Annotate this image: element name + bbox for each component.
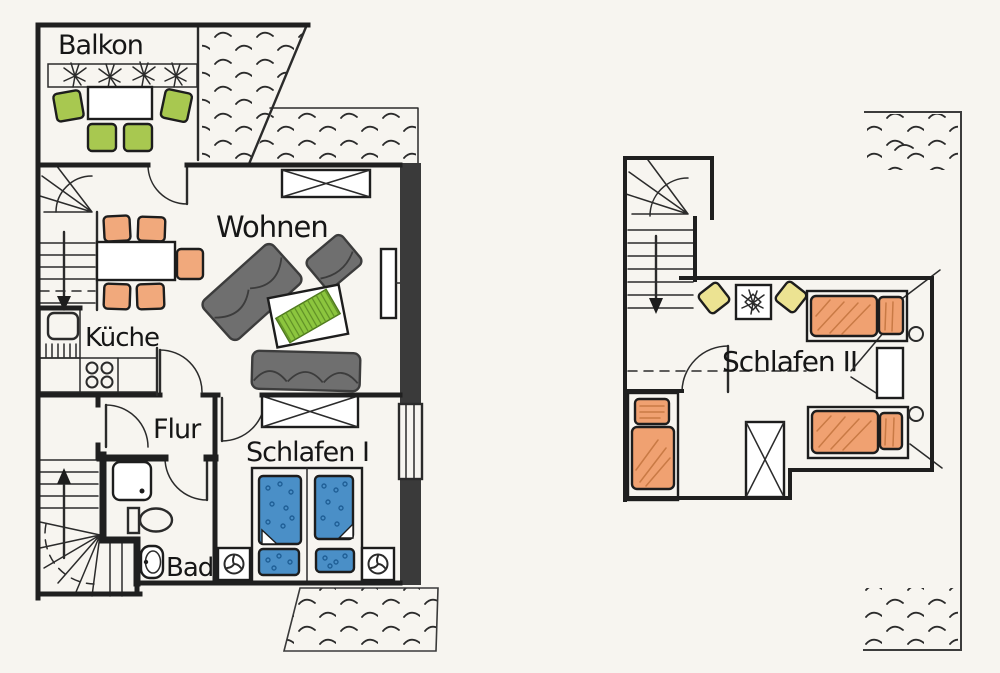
roof-tiles-right-face	[252, 110, 416, 162]
balcony: Balkon	[48, 27, 198, 160]
balcony-chair	[88, 124, 116, 151]
room-label-balkon: Balkon	[58, 30, 143, 61]
room-label-schlafen1: Schlafen I	[246, 437, 369, 468]
single-bed-alcove	[628, 393, 678, 500]
room-label-wohnen: Wohnen	[216, 210, 328, 244]
ventilation-fan-icon	[362, 548, 394, 580]
duvet-blue	[259, 476, 301, 544]
shower-drain	[140, 489, 145, 494]
duvet-blue	[315, 476, 353, 539]
bedroom-2: Schlafen II	[628, 270, 942, 500]
floor-plan-page: Balkon Küche W	[0, 0, 1000, 673]
roof-area-top	[202, 27, 418, 164]
upper-floor-plan: Schlafen II	[625, 112, 961, 650]
stairs-lower-left	[40, 460, 122, 596]
wardrobe	[282, 170, 370, 197]
bath-door-swing	[165, 458, 207, 500]
exterior-wall-right	[399, 163, 422, 585]
pillow	[880, 413, 902, 449]
stove-burner-icon	[102, 377, 113, 388]
bedroom-1: Schlafen I	[218, 396, 394, 583]
roof-area-bottom	[284, 588, 438, 651]
stove-burner-icon	[87, 377, 98, 388]
plant-icon	[64, 63, 86, 87]
balcony-door-swing	[148, 165, 187, 204]
nightstand	[877, 348, 903, 398]
stairs-arrow-up-icon	[57, 468, 71, 484]
dining-chair	[104, 284, 131, 310]
balcony-chair	[160, 89, 192, 123]
bathroom: Bad	[113, 458, 213, 583]
shower-icon	[113, 462, 151, 500]
toilet-tank	[128, 508, 139, 533]
ground-floor-plan: Balkon Küche W	[38, 25, 438, 651]
balcony-chair	[53, 90, 84, 122]
entry-door-swing	[106, 405, 148, 447]
single-bed	[808, 407, 908, 458]
dining-chair	[137, 284, 165, 310]
plant-icon	[165, 63, 187, 87]
bedroom1-door-swing	[222, 398, 265, 441]
stairs-upper-floor	[626, 160, 693, 314]
stove-burner-icon	[102, 363, 113, 374]
floor-plan-drawing: Balkon Küche W	[0, 0, 1000, 673]
roof-window-handle-icon	[909, 327, 923, 341]
stove-burner-icon	[87, 363, 98, 374]
roof-tiles-bottom-right	[864, 588, 958, 648]
kitchen-door-swing	[160, 350, 202, 392]
floor-cushion	[697, 281, 731, 315]
stairs-arrow-down-icon	[649, 298, 663, 314]
kitchen: Küche	[40, 308, 202, 392]
dining-chair	[177, 249, 203, 279]
hallway: Flur	[106, 405, 202, 447]
stairs-upper-left	[40, 165, 97, 311]
balcony-chair	[124, 124, 152, 151]
roof-tiles-bottom	[284, 588, 438, 651]
dining-chair	[103, 215, 130, 241]
roof-tiles-top-right	[867, 114, 958, 170]
wardrobe	[746, 422, 784, 497]
sofa-three-seat	[252, 351, 361, 392]
plant-icon	[133, 62, 155, 86]
pillow-blue	[316, 549, 354, 572]
plant-table	[736, 285, 771, 319]
floor-cushion	[774, 280, 808, 314]
dining-chair	[138, 217, 166, 242]
room-label-kueche: Küche	[85, 323, 159, 353]
single-bed	[807, 291, 907, 341]
sink-icon	[48, 313, 78, 339]
pillow	[879, 297, 903, 334]
wardrobe	[262, 396, 358, 427]
kitchen-counter	[40, 358, 157, 392]
room-label-flur: Flur	[153, 414, 202, 445]
balcony-table	[88, 87, 152, 119]
radiator	[381, 249, 396, 318]
room-label-bad: Bad	[166, 553, 213, 583]
pillow-blue	[259, 549, 299, 575]
roof-window-handle-icon	[909, 407, 923, 421]
plant-icon	[99, 64, 121, 88]
dining-table	[97, 242, 175, 280]
ventilation-fan-icon	[218, 548, 250, 580]
room-label-schlafen2: Schlafen II	[722, 345, 857, 378]
drain-rack	[46, 344, 76, 357]
window	[399, 404, 422, 479]
toilet-icon	[140, 509, 172, 532]
